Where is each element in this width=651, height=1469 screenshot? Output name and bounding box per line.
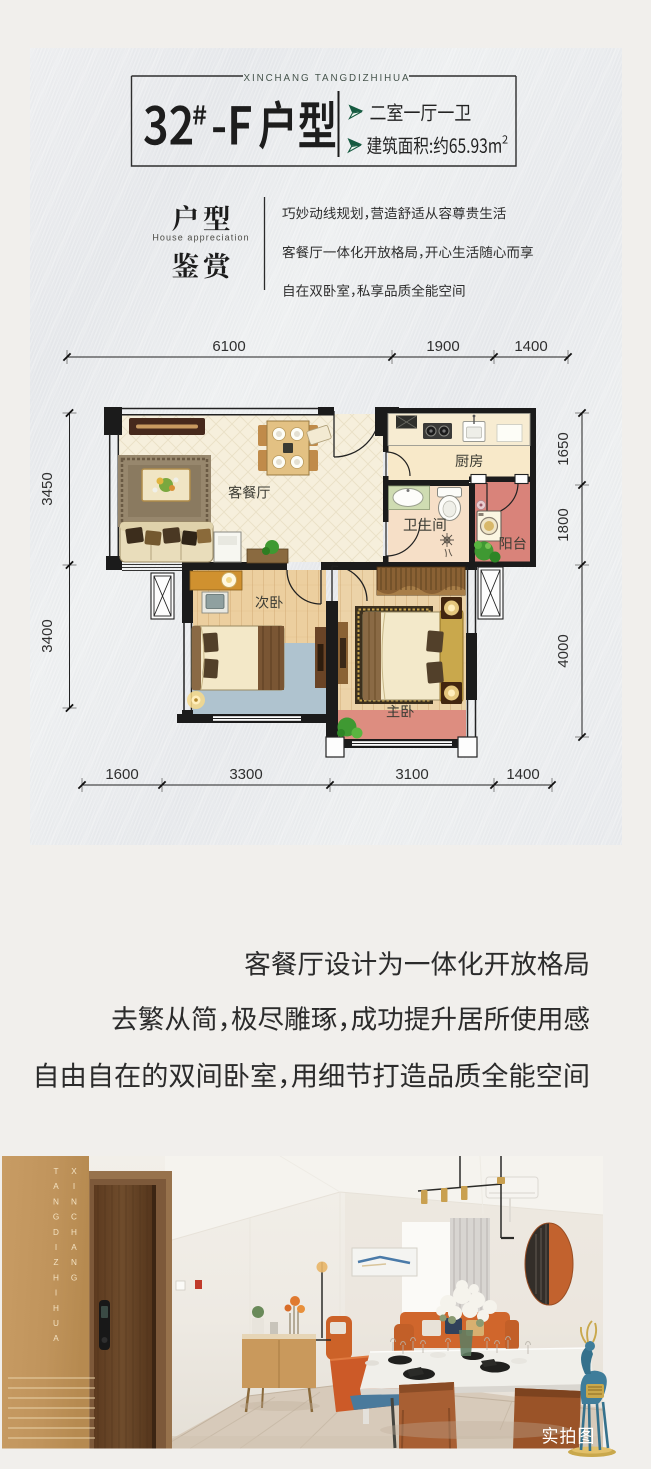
svg-text:N: N [71,1197,77,1206]
svg-text:A: A [71,1243,77,1252]
svg-text:1650: 1650 [555,432,572,465]
svg-text:XINCHANG TANGDIZHIHUA: XINCHANG TANGDIZHIHUA [244,73,411,84]
svg-text:T: T [53,1167,58,1176]
svg-text:A: A [53,1334,59,1343]
svg-text:1400: 1400 [506,766,539,783]
svg-text:6100: 6100 [212,338,245,355]
svg-text:N: N [71,1258,77,1267]
svg-text:U: U [53,1319,59,1328]
svg-text:I: I [55,1243,57,1252]
svg-text:G: G [53,1213,59,1222]
svg-text:1900: 1900 [426,338,459,355]
svg-text:I: I [73,1182,75,1191]
svg-text:3400: 3400 [39,619,56,652]
svg-text:1600: 1600 [105,766,138,783]
svg-text:H: H [53,1273,59,1282]
svg-text:H: H [53,1304,59,1313]
svg-text:1400: 1400 [514,338,547,355]
svg-text:A: A [53,1182,59,1191]
svg-text:X: X [71,1167,77,1176]
svg-text:Z: Z [53,1258,58,1267]
svg-text:I: I [55,1289,57,1298]
svg-text:G: G [71,1273,77,1282]
svg-text:H: H [71,1228,77,1237]
svg-text:3450: 3450 [39,472,56,505]
svg-text:1800: 1800 [555,508,572,541]
svg-text:4000: 4000 [555,634,572,667]
svg-text:House appreciation: House appreciation [152,233,249,243]
svg-text:D: D [53,1228,59,1237]
svg-text:3300: 3300 [229,766,262,783]
svg-text:N: N [53,1197,59,1206]
svg-text:3100: 3100 [395,766,428,783]
svg-text:C: C [71,1213,77,1222]
